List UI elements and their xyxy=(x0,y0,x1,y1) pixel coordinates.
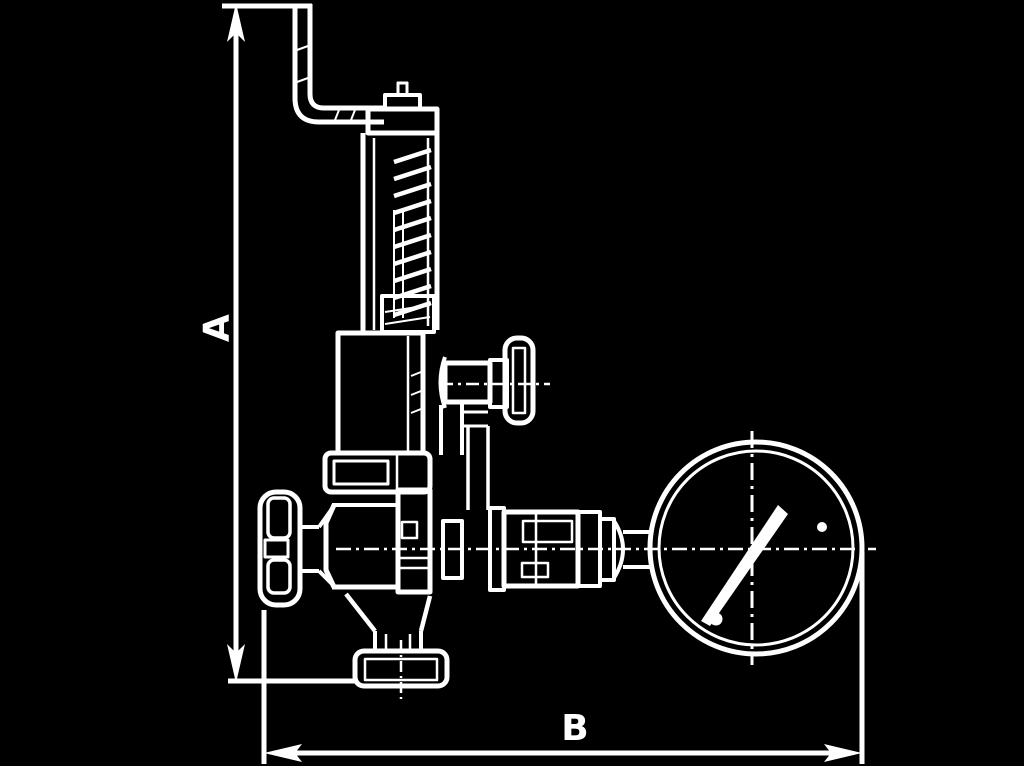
outlet-taper xyxy=(421,596,430,631)
spring-seat-line xyxy=(385,317,430,324)
spring-coil xyxy=(394,269,431,281)
spring-coil xyxy=(394,218,431,230)
gauge-piping-icon xyxy=(336,508,876,590)
gauge-screw-dot xyxy=(710,613,723,626)
dim-b-label: B xyxy=(561,708,588,749)
lever-tick xyxy=(335,110,339,120)
thread-tick xyxy=(411,409,421,413)
cap-nut-icon xyxy=(368,82,437,133)
release-lever-icon xyxy=(295,4,384,122)
thread-tick xyxy=(411,391,421,395)
outlet-flange-icon xyxy=(346,594,447,700)
isolation-valve-knob-icon xyxy=(505,338,533,423)
spring-coil xyxy=(394,252,431,264)
handwheel-hub xyxy=(265,540,288,557)
body-left-edge xyxy=(326,505,334,587)
body-outlet-chamber xyxy=(398,490,430,592)
spring-coil xyxy=(394,235,431,247)
isolation-valve-body xyxy=(445,363,490,402)
spring-coils-icon xyxy=(382,150,434,332)
gauge-needle-icon xyxy=(701,505,788,626)
spring-seat xyxy=(382,296,434,332)
thread-tick xyxy=(411,372,421,376)
union-detail xyxy=(523,521,572,542)
gauge-screw-dot xyxy=(817,522,827,532)
bonnet-flange-inner xyxy=(334,461,388,484)
lever-inner-edge xyxy=(310,4,384,108)
valve-dimension-drawing: A B xyxy=(0,0,1024,766)
gauge-isolation-valve-icon xyxy=(440,338,550,510)
spring-coil xyxy=(394,150,431,162)
outlet-taper xyxy=(346,594,375,631)
spring-coil xyxy=(394,201,431,213)
lever-tick xyxy=(297,78,308,82)
lever-tick xyxy=(351,110,355,120)
lower-housing-body xyxy=(338,333,423,453)
isolation-valve-knob-inner xyxy=(513,348,525,413)
spring-coil xyxy=(394,167,431,179)
handwheel-rim-top xyxy=(268,498,290,538)
valve-body-icon xyxy=(326,490,430,592)
relief-valve-drawing xyxy=(260,4,876,700)
handwheel-rim-bottom xyxy=(268,560,290,593)
handwheel-icon xyxy=(260,492,334,605)
bonnet-flange-outer xyxy=(325,453,430,492)
spring-coil xyxy=(394,184,431,196)
lower-housing-icon xyxy=(338,333,423,453)
dim-a-label: A xyxy=(197,314,238,342)
body-stem-detail xyxy=(402,522,417,538)
bonnet-flange-icon xyxy=(325,453,430,492)
lever-tick xyxy=(297,46,308,50)
